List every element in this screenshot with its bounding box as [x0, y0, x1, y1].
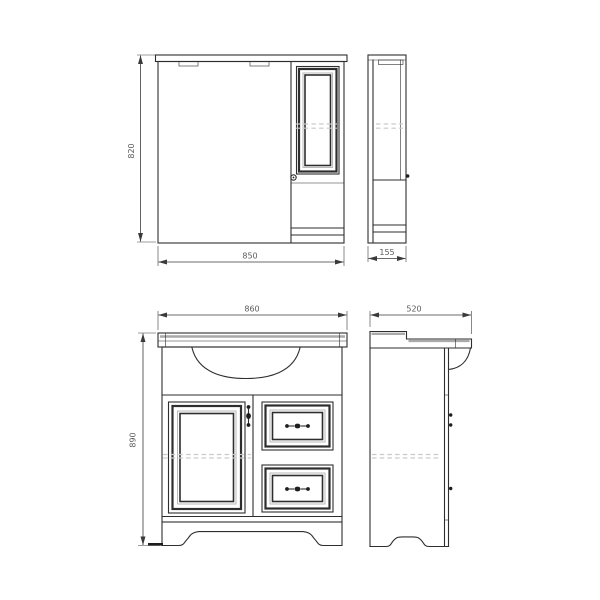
- dim-mirror-depth: 155: [368, 246, 406, 262]
- vanity-side-view: 520: [370, 305, 472, 547]
- dim-mirror-width: 850: [158, 246, 344, 266]
- side-knob-drawer-bottom: [449, 487, 452, 490]
- vanity-drawer-bottom: [262, 465, 333, 512]
- dim-vanity-width-label: 860: [244, 305, 259, 314]
- dim-vanity-depth-label: 520: [406, 305, 421, 314]
- basin-bowl-outline: [192, 348, 300, 379]
- technical-drawing-page: 820 850 155: [0, 0, 600, 600]
- vanity-drawer-bottom-handle: [285, 487, 310, 492]
- mirror-cabinet-door: [291, 67, 344, 184]
- countertop-endcap-right: [340, 333, 348, 347]
- mirror-panel: [158, 62, 344, 244]
- dim-mirror-height-label: 820: [127, 143, 136, 158]
- dim-mirror-depth-label: 155: [379, 248, 394, 257]
- side-knob-drawer-top: [449, 423, 452, 426]
- vanity-drawer-top-handle: [285, 424, 310, 429]
- mirror-open-shelf: [291, 228, 344, 235]
- dim-mirror-width-label: 850: [242, 252, 257, 261]
- dim-vanity-depth: 520: [370, 305, 472, 335]
- side-knob-door-top: [449, 413, 452, 416]
- vanity-side-countertop: [370, 332, 472, 370]
- mirror-cabinet-side-view: 155: [368, 55, 409, 262]
- mirror-side-open-shelf: [373, 225, 406, 232]
- vanity-front-view: 860: [129, 305, 348, 546]
- side-basin-overhang-curve: [449, 348, 471, 370]
- vanity-side-legs: [370, 537, 449, 547]
- countertop-endcap-left: [158, 333, 166, 347]
- mirror-cabinet-front-view: 820 850: [127, 55, 347, 266]
- mirror-side-knob: [406, 174, 410, 178]
- vanity-body: [162, 347, 342, 522]
- mirror-door-knob-dot: [293, 177, 295, 179]
- vanity-hidden-shelf-lines: [163, 455, 251, 459]
- dim-mirror-height: 820: [127, 55, 156, 242]
- vanity-countertop: [158, 333, 347, 379]
- vanity-side-hidden-shelf-lines: [372, 455, 441, 459]
- vanity-side-body: [370, 332, 452, 547]
- vanity-drawer-top: [262, 402, 333, 450]
- dim-vanity-height-label: 890: [129, 432, 138, 447]
- vanity-door-handle: [246, 405, 251, 427]
- technical-drawing-canvas: 820 850 155: [0, 0, 600, 600]
- canopy-clip-right: [250, 62, 269, 67]
- vanity-apron-legs: [162, 522, 342, 546]
- dim-vanity-width: 860: [158, 305, 347, 331]
- mirror-side-top-detail: [379, 60, 404, 65]
- mirror-canopy: [156, 55, 348, 66]
- canopy-clip-left: [179, 62, 198, 67]
- dim-vanity-height: 890: [129, 333, 161, 546]
- mirror-side-hidden-shelf-lines: [376, 124, 403, 128]
